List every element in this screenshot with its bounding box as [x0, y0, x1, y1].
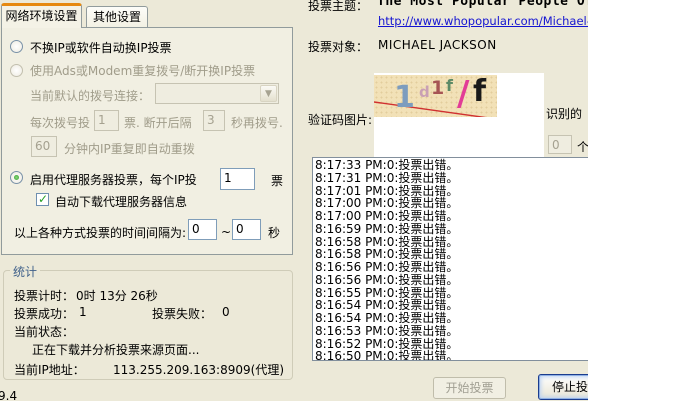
- vote-topic-value: The Most Popular People Of: [377, 0, 588, 9]
- dial-votes-suffix: 秒再拨号.: [231, 114, 283, 131]
- tab-network-settings[interactable]: 网络环境设置: [1, 3, 82, 28]
- vote-success-label: 投票成功：: [14, 305, 74, 322]
- vote-topic-url-link[interactable]: http://www.whopopular.com/Michael-Jacks: [378, 14, 588, 28]
- screenshot-canvas: 网络环境设置 其他设置 不换IP或软件自动换IP投票 使用Ads或Modem重复…: [0, 0, 683, 401]
- dial-votes-mid: 票. 断开后隔: [124, 114, 192, 131]
- log-entry[interactable]: 8:16:56 PM:0:投票出错。: [313, 261, 588, 274]
- vote-log[interactable]: 8:17:33 PM:0:投票出错。8:17:31 PM:0:投票出错。8:17…: [312, 157, 588, 361]
- log-entry[interactable]: 8:16:56 PM:0:投票出错。: [313, 274, 588, 287]
- interval-max-input[interactable]: 0: [232, 219, 261, 240]
- dial-connection-combobox: ▼: [155, 83, 279, 104]
- redial-suffix: 分钟内IP重复即自动重拨: [64, 140, 195, 157]
- captcha-char: f: [446, 78, 453, 94]
- log-entry[interactable]: 8:17:33 PM:0:投票出错。: [313, 159, 588, 172]
- chevron-down-icon: ▼: [260, 85, 277, 102]
- dial-connection-label: 当前默认的拨号连接：: [30, 87, 150, 104]
- current-status-value: 正在下载并分析投票来源页面...: [32, 341, 199, 358]
- radio-use-proxy-label: 启用代理服务器投票，每个IP投: [30, 171, 197, 188]
- dial-votes-input: 1: [94, 110, 119, 131]
- proxy-votes-input[interactable]: 1: [220, 168, 255, 190]
- captcha-display-area: 1d1f/f: [374, 73, 544, 160]
- app-window: 网络环境设置 其他设置 不换IP或软件自动换IP投票 使用Ads或Modem重复…: [0, 0, 588, 401]
- stop-vote-button[interactable]: 停止投票: [538, 374, 588, 400]
- interval-tilde: ~: [221, 225, 231, 239]
- vote-fail-value: 0: [222, 305, 230, 319]
- vote-target-label: 投票对象：: [308, 38, 368, 55]
- tab-other-settings[interactable]: 其他设置: [86, 6, 148, 28]
- interval-min-input[interactable]: 0: [188, 219, 217, 240]
- captcha-image: 1d1f/f: [374, 75, 497, 117]
- proxy-votes-suffix: 票: [271, 172, 283, 189]
- current-status-label: 当前状态：: [14, 323, 74, 340]
- recognized-count-input: 0: [548, 135, 572, 154]
- radio-use-proxy[interactable]: [10, 171, 23, 184]
- radio-adsl-redial: [10, 64, 23, 77]
- radio-no-ip-change-label: 不换IP或软件自动换IP投票: [30, 39, 172, 56]
- current-ip-label: 当前IP地址：: [14, 361, 85, 378]
- captcha-char: /: [457, 77, 469, 111]
- recognized-label: 识别的: [546, 105, 582, 122]
- log-entry[interactable]: 8:16:53 PM:0:投票出错。: [313, 325, 588, 338]
- interval-prefix: 以上各种方式投票的时间间隔为:: [14, 224, 186, 241]
- captcha-label: 验证码图片:: [308, 111, 372, 128]
- interval-suffix: 秒: [268, 224, 280, 241]
- log-entry[interactable]: 8:16:59 PM:0:投票出错。: [313, 223, 588, 236]
- dial-wait-input: 3: [203, 110, 225, 131]
- current-ip-value: 113.255.209.163:8909(代理): [113, 361, 284, 378]
- radio-no-ip-change[interactable]: [10, 40, 23, 53]
- log-entry[interactable]: 8:17:31 PM:0:投票出错。: [313, 172, 588, 185]
- log-entry[interactable]: 8:17:00 PM:0:投票出错。: [313, 210, 588, 223]
- statistics-title: 统计: [10, 263, 40, 280]
- statusbar-fragment: 9.4: [0, 389, 17, 401]
- redial-minutes-input: 60: [31, 136, 57, 157]
- vote-timer-value: 0时 13分 26秒: [76, 287, 158, 304]
- vote-timer-label: 投票计时：: [14, 287, 74, 304]
- captcha-char: f: [473, 77, 486, 107]
- captcha-char: 1: [394, 83, 415, 113]
- vote-topic-label: 投票主题：: [308, 0, 368, 14]
- vote-target-value: MICHAEL JACKSON: [378, 38, 497, 52]
- radio-adsl-redial-label: 使用Ads或Modem重复拨号/断开换IP投票: [30, 62, 255, 79]
- dial-votes-prefix: 每次拨号投: [30, 114, 90, 131]
- vote-fail-label: 投票失败：: [152, 305, 212, 322]
- checkbox-auto-download-label: 自动下载代理服务器信息: [55, 193, 187, 210]
- start-vote-button: 开始投票: [433, 377, 506, 399]
- log-entry[interactable]: 8:16:50 PM:0:投票出错。: [313, 350, 588, 361]
- checkbox-auto-download-proxy[interactable]: [36, 193, 49, 206]
- vote-success-value: 1: [79, 305, 87, 319]
- log-entry[interactable]: 8:16:54 PM:0:投票出错。: [313, 312, 588, 325]
- captcha-char: d: [419, 85, 430, 100]
- recognized-unit: 个: [577, 138, 588, 155]
- captcha-char: 1: [431, 79, 444, 98]
